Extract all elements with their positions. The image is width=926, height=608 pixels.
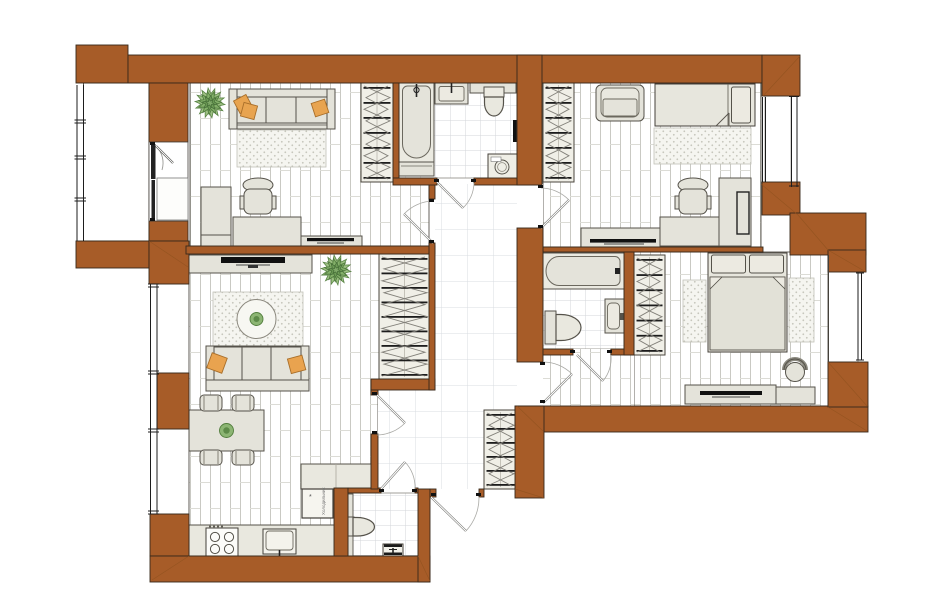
svg-text:Холодильник: Холодильник [321,487,326,515]
svg-text:*: * [309,494,312,501]
